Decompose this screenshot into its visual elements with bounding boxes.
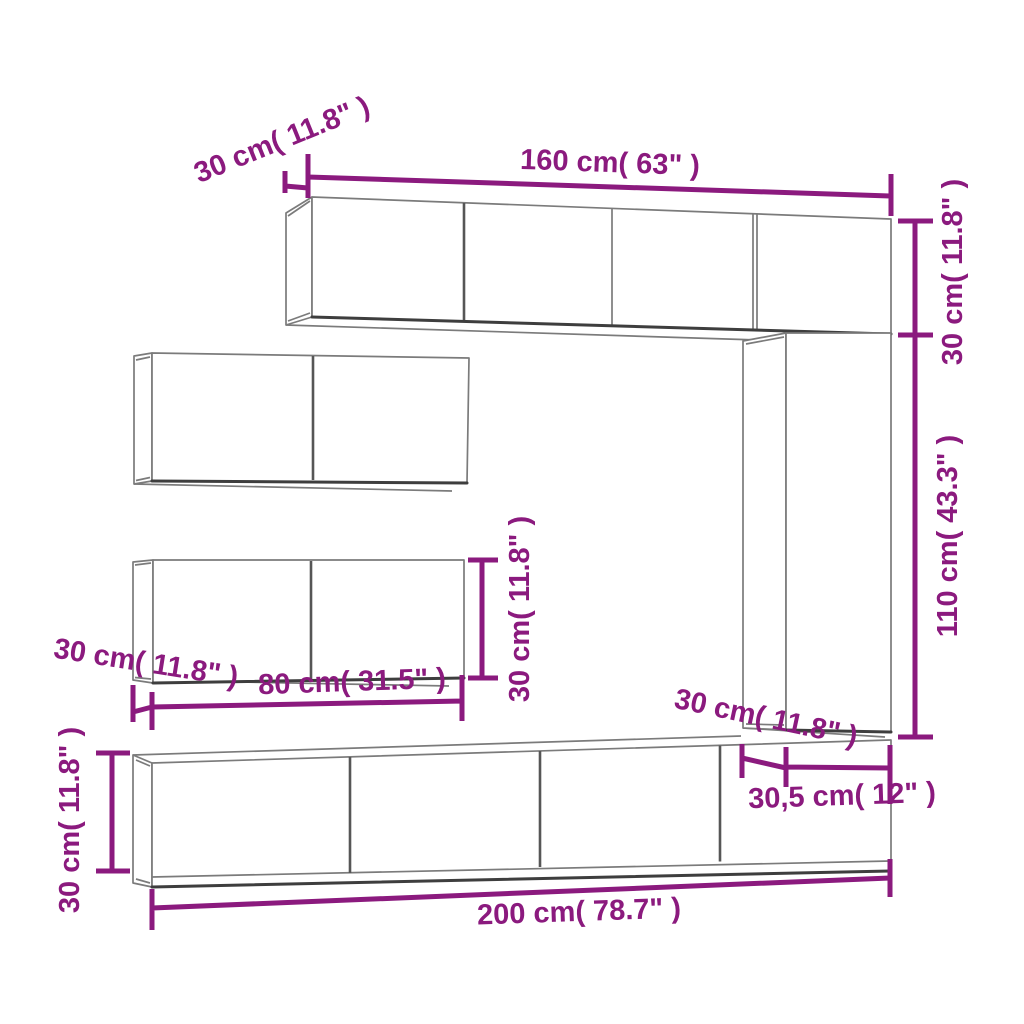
dim-label-right-column-height: 110 cm( 43.3" ) (932, 435, 964, 637)
mid-upper-bottom-back-edge (134, 484, 452, 491)
dim-bottom-height-lines (96, 753, 130, 871)
furniture-dimension-diagram: 30 cm( 11.8" ) 160 cm( 63" ) 30 cm( 11.8… (0, 0, 1024, 1024)
bottom-cabinet-side-panel (133, 755, 152, 887)
top-wall-cabinet (286, 197, 891, 340)
dim-label-bottom-height: 30 cm( 11.8" ) (54, 727, 86, 913)
dim-label-top-depth: 30 cm( 11.8" ) (190, 90, 375, 189)
top-cabinet-front-face (312, 197, 891, 334)
right-column-cabinet (743, 333, 891, 737)
dim-label-mid-width: 80 cm( 31.5" ) (258, 663, 447, 702)
mid-upper-bottom-edge (152, 481, 467, 483)
dim-mid-height-lines (468, 560, 498, 678)
column-side-panel (743, 333, 786, 730)
dim-label-top-width: 160 cm( 63" ) (520, 144, 701, 182)
diagram-canvas: 30 cm( 11.8" ) 160 cm( 63" ) 30 cm( 11.8… (0, 0, 1024, 1024)
column-front-face (786, 333, 891, 732)
dim-top-right-height-lines (898, 221, 933, 335)
mid-wall-cabinet-upper (134, 353, 469, 491)
dim-top-depth-lines (285, 171, 308, 193)
mid-upper-side-panel (134, 353, 152, 484)
top-cabinet-side-panel (286, 197, 312, 325)
dim-label-mid-height: 30 cm( 11.8" ) (504, 516, 536, 702)
dim-label-column-width: 30,5 cm( 12" ) (748, 777, 937, 816)
dim-right-column-height-lines (898, 335, 933, 737)
dim-label-top-right-height: 30 cm( 11.8" ) (937, 179, 969, 365)
dim-label-bottom-width: 200 cm( 78.7" ) (477, 892, 682, 931)
mid-upper-front-face (152, 353, 469, 483)
